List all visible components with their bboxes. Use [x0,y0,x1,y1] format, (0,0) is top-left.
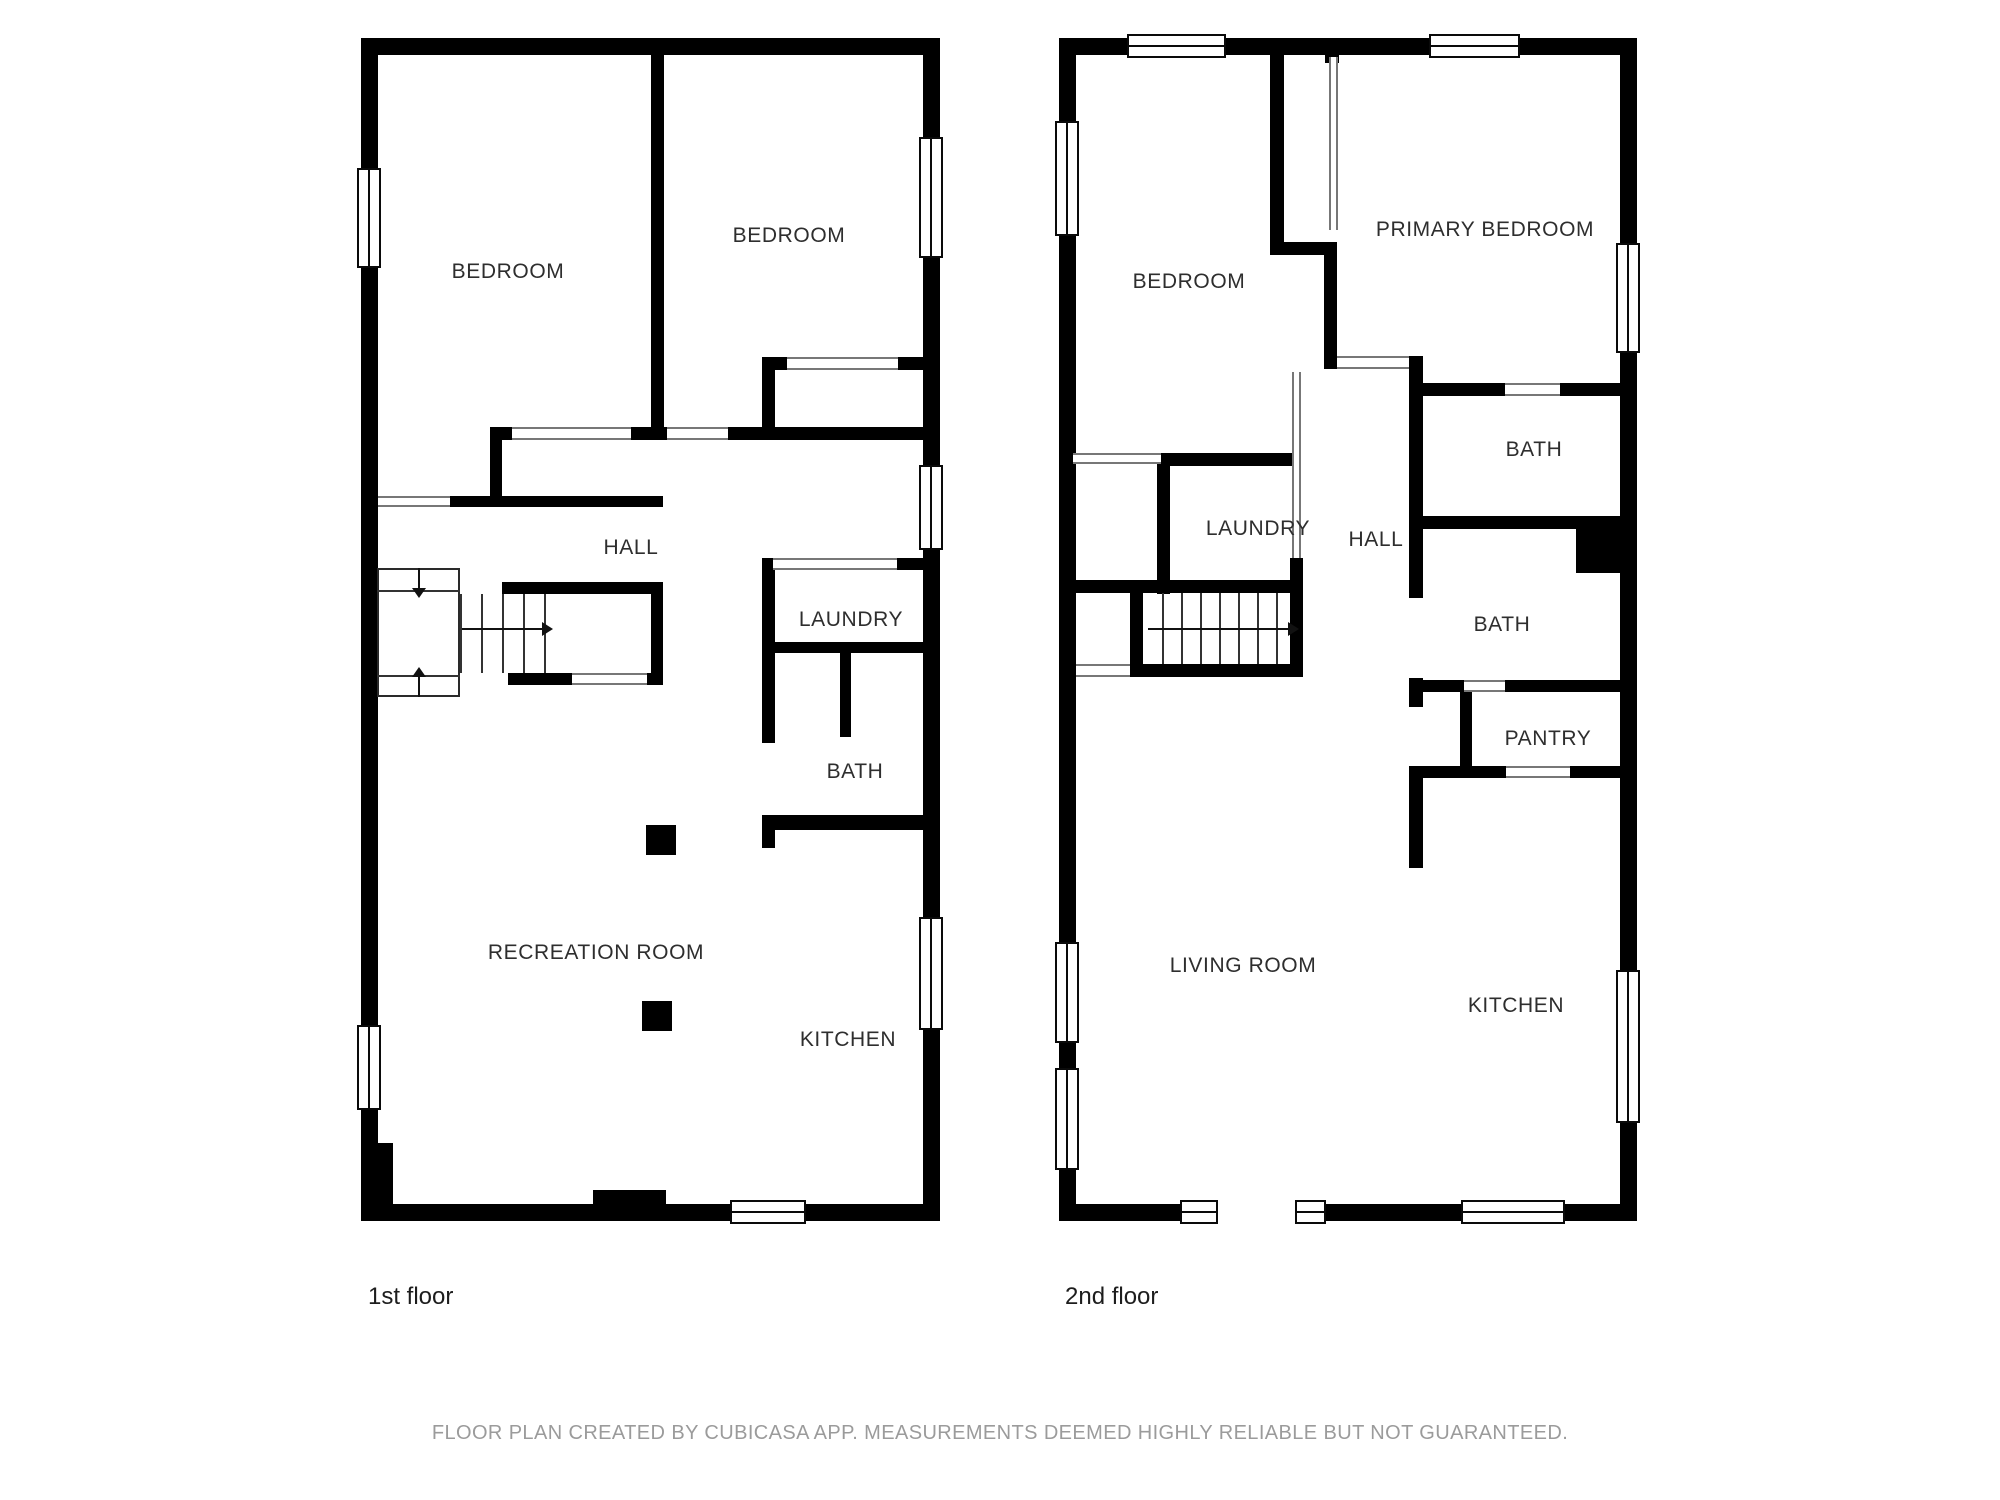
wall [1409,766,1423,868]
wall [508,673,572,685]
room-label-kitchen-1: KITCHEN [800,1028,896,1052]
wall [772,642,923,653]
wall [361,38,940,55]
wall [762,357,775,440]
room-label-living-room: LIVING ROOM [1170,954,1317,978]
window [919,465,943,550]
door-opening [787,357,898,370]
wall [490,427,502,507]
door-opening [1337,356,1409,369]
wall [1290,558,1303,677]
room-label-bedroom-right: BEDROOM [733,224,846,248]
room-label-primary-bedroom: PRIMARY BEDROOM [1376,218,1594,242]
wall [1409,384,1423,598]
wall [1460,692,1472,767]
support-post [646,825,676,855]
wall [1130,593,1143,664]
door-opening [1329,57,1338,230]
window [1616,970,1640,1123]
wall [1076,580,1303,593]
wall [1423,383,1505,396]
wall [1505,680,1620,692]
stair-direction-arrow [1148,628,1288,630]
footer-disclaimer: FLOOR PLAN CREATED BY CUBICASA APP. MEAS… [0,1422,2000,1445]
wall [1423,766,1506,778]
wall [762,815,923,830]
stair-line [481,594,483,673]
wall [1409,356,1423,384]
caption-1st-floor: 1st floor [368,1283,453,1311]
window [357,168,381,268]
stair-line [502,594,504,673]
caption-2nd-floor: 2nd floor [1065,1283,1158,1311]
stair-line [523,594,525,673]
door-opening [1073,453,1161,464]
wall [1157,464,1170,594]
wall [651,582,663,685]
wall [1576,516,1620,573]
wall [502,582,663,594]
stair-direction-arrow [462,628,542,630]
door-opening [512,427,631,440]
wall [651,55,664,440]
floor-plan-canvas: BEDROOM BEDROOM HALL LAUNDRY BATH RECREA… [0,0,2000,1500]
door-opening [1464,680,1505,692]
wall [1157,453,1298,466]
wall [647,673,663,685]
wall [593,1190,666,1221]
window [1461,1200,1565,1224]
wall [1570,766,1620,778]
window [1055,942,1079,1043]
door-opening [667,427,728,440]
door-opening [572,673,647,685]
wall [728,427,923,440]
room-label-bath-upper: BATH [1506,438,1563,462]
support-post [642,1001,672,1031]
window [1055,121,1079,236]
door-opening [378,496,450,507]
wall [1409,680,1464,692]
wall [1130,664,1303,677]
wall [1560,383,1620,396]
room-label-laundry-2: LAUNDRY [1206,517,1310,541]
wall [898,357,923,370]
door-opening [773,558,897,570]
window [919,917,943,1030]
window [1127,34,1226,58]
window [1295,1200,1326,1224]
wall [361,1143,393,1221]
wall [450,496,663,507]
door-opening [1076,664,1130,677]
stair-direction-arrow [418,568,420,588]
wall [631,427,667,440]
room-label-hall-1: HALL [604,536,659,560]
door-gap [1218,1202,1295,1223]
wall [762,815,775,848]
wall [897,558,923,570]
window [1429,34,1520,58]
wall [1324,242,1337,369]
wall [840,653,851,737]
room-label-bedroom-2: BEDROOM [1133,270,1246,294]
window [357,1025,381,1110]
room-label-laundry-1: LAUNDRY [799,608,903,632]
window [1616,243,1640,353]
room-label-hall-2: HALL [1349,528,1404,552]
wall [1270,55,1284,255]
window [730,1200,806,1224]
stair-line [460,594,462,673]
room-label-bath-lower: BATH [1474,613,1531,637]
room-label-pantry: PANTRY [1505,727,1592,751]
door-opening [1506,766,1570,778]
door-opening [1505,383,1560,396]
room-label-recreation-room: RECREATION ROOM [488,941,704,965]
window [1180,1200,1218,1224]
stair-direction-arrow [418,677,420,697]
room-label-bedroom-left: BEDROOM [452,260,565,284]
room-label-bath-1: BATH [827,760,884,784]
window [1055,1068,1079,1170]
window [919,137,943,258]
room-label-kitchen-2: KITCHEN [1468,994,1564,1018]
